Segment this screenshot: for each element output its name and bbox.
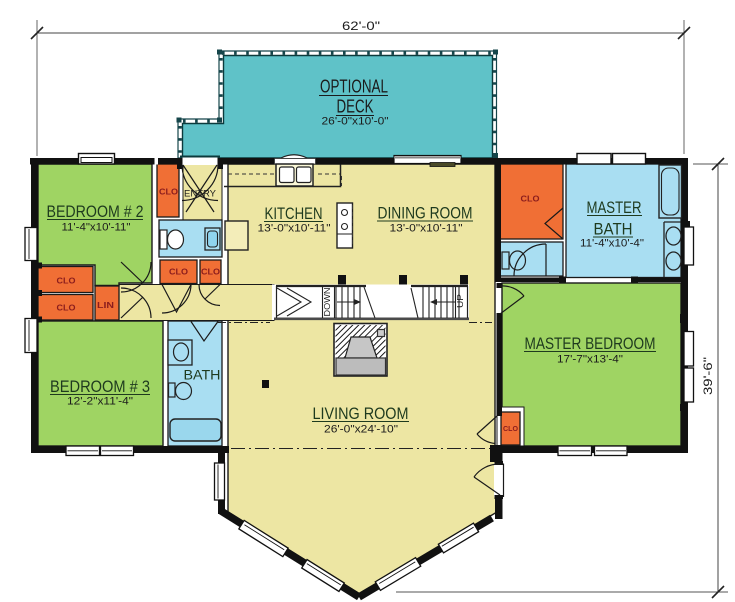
svg-text:BEDROOM # 3: BEDROOM # 3 <box>50 378 150 396</box>
svg-text:CLO: CLO <box>521 194 540 204</box>
svg-text:BATH: BATH <box>594 221 633 239</box>
svg-text:CLO: CLO <box>169 267 188 277</box>
svg-text:12'-2"x11'-4": 12'-2"x11'-4" <box>67 396 133 408</box>
svg-text:17'-7"x13'-4": 17'-7"x13'-4" <box>557 354 623 366</box>
svg-text:LIN: LIN <box>97 300 114 310</box>
svg-text:MASTER BEDROOM: MASTER BEDROOM <box>525 335 656 353</box>
svg-text:BATH: BATH <box>184 367 221 383</box>
svg-text:BEDROOM # 2: BEDROOM # 2 <box>47 203 144 221</box>
svg-text:13'-0"x10'-11": 13'-0"x10'-11" <box>258 223 331 235</box>
svg-text:OPTIONAL: OPTIONAL <box>320 77 388 97</box>
svg-text:ENTRY: ENTRY <box>184 189 217 200</box>
svg-text:CLO: CLO <box>57 303 76 313</box>
svg-text:26'-0"x24'-10": 26'-0"x24'-10" <box>324 424 398 436</box>
svg-text:13'-0"x10'-11": 13'-0"x10'-11" <box>390 223 463 235</box>
svg-text:DINING ROOM: DINING ROOM <box>378 205 473 223</box>
svg-text:UP: UP <box>455 294 465 308</box>
svg-text:11'-4"x10'-4": 11'-4"x10'-4" <box>580 238 644 250</box>
svg-text:39'-6": 39'-6" <box>701 357 715 395</box>
svg-text:11'-4"x10'-11": 11'-4"x10'-11" <box>62 222 131 234</box>
svg-text:KITCHEN: KITCHEN <box>265 205 323 223</box>
svg-text:CLO: CLO <box>57 276 76 286</box>
svg-text:CLO: CLO <box>159 187 178 197</box>
svg-text:CLO: CLO <box>503 426 519 433</box>
svg-text:DECK: DECK <box>337 97 374 117</box>
svg-text:DOWN: DOWN <box>322 288 332 317</box>
svg-text:LIVING ROOM: LIVING ROOM <box>313 405 409 423</box>
svg-text:26'-0"x10'-0": 26'-0"x10'-0" <box>322 116 389 128</box>
svg-text:62'-0": 62'-0" <box>342 19 380 33</box>
svg-text:MASTER: MASTER <box>587 199 642 217</box>
svg-text:CLO: CLO <box>201 267 220 277</box>
